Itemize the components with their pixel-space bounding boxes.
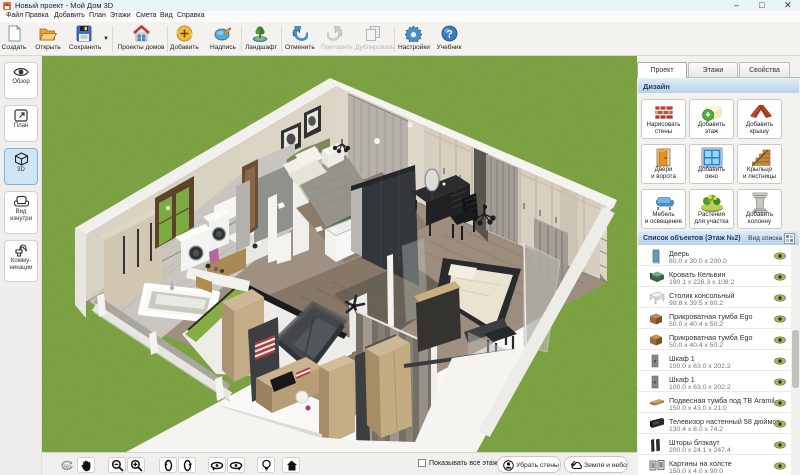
svg-text:360: 360 — [63, 465, 72, 471]
svg-text:?: ? — [446, 28, 453, 40]
